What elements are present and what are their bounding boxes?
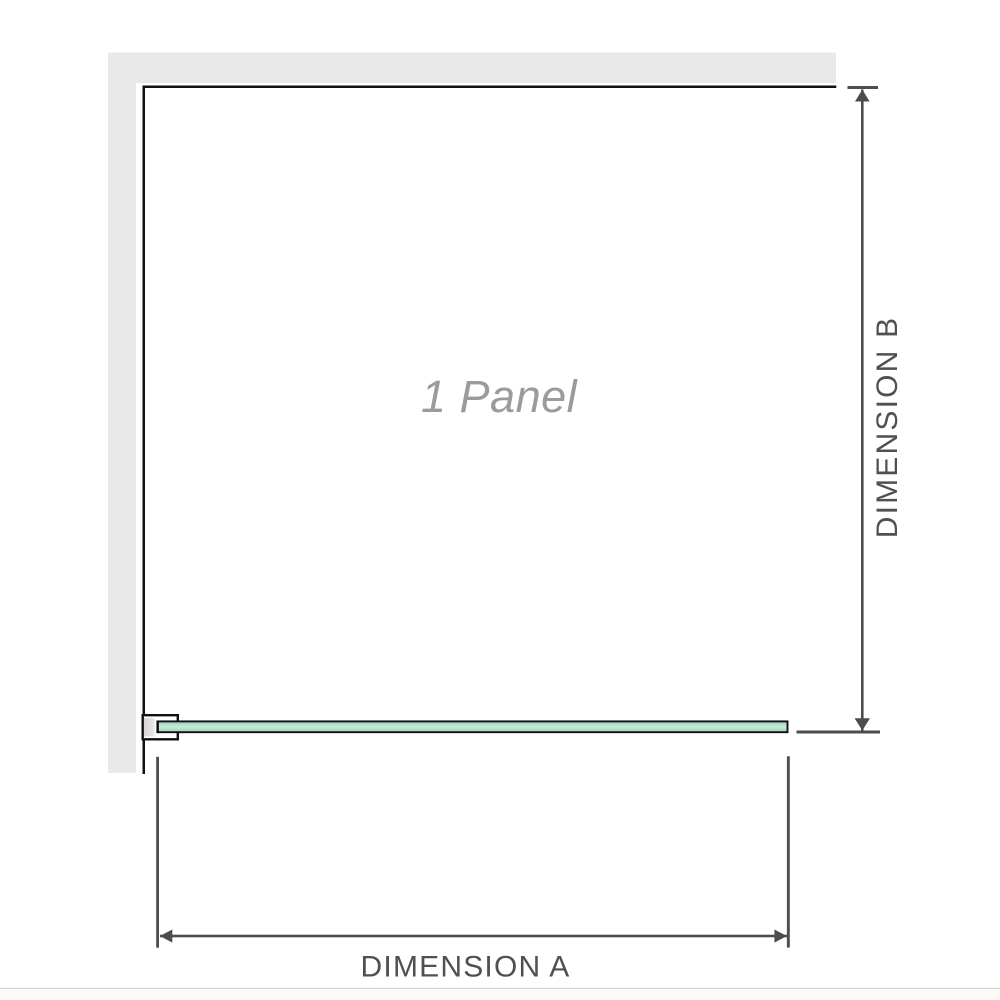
svg-text:1 Panel: 1 Panel (421, 371, 579, 422)
svg-text:DIMENSION B: DIMENSION B (871, 316, 904, 539)
svg-text:DIMENSION A: DIMENSION A (361, 951, 571, 984)
